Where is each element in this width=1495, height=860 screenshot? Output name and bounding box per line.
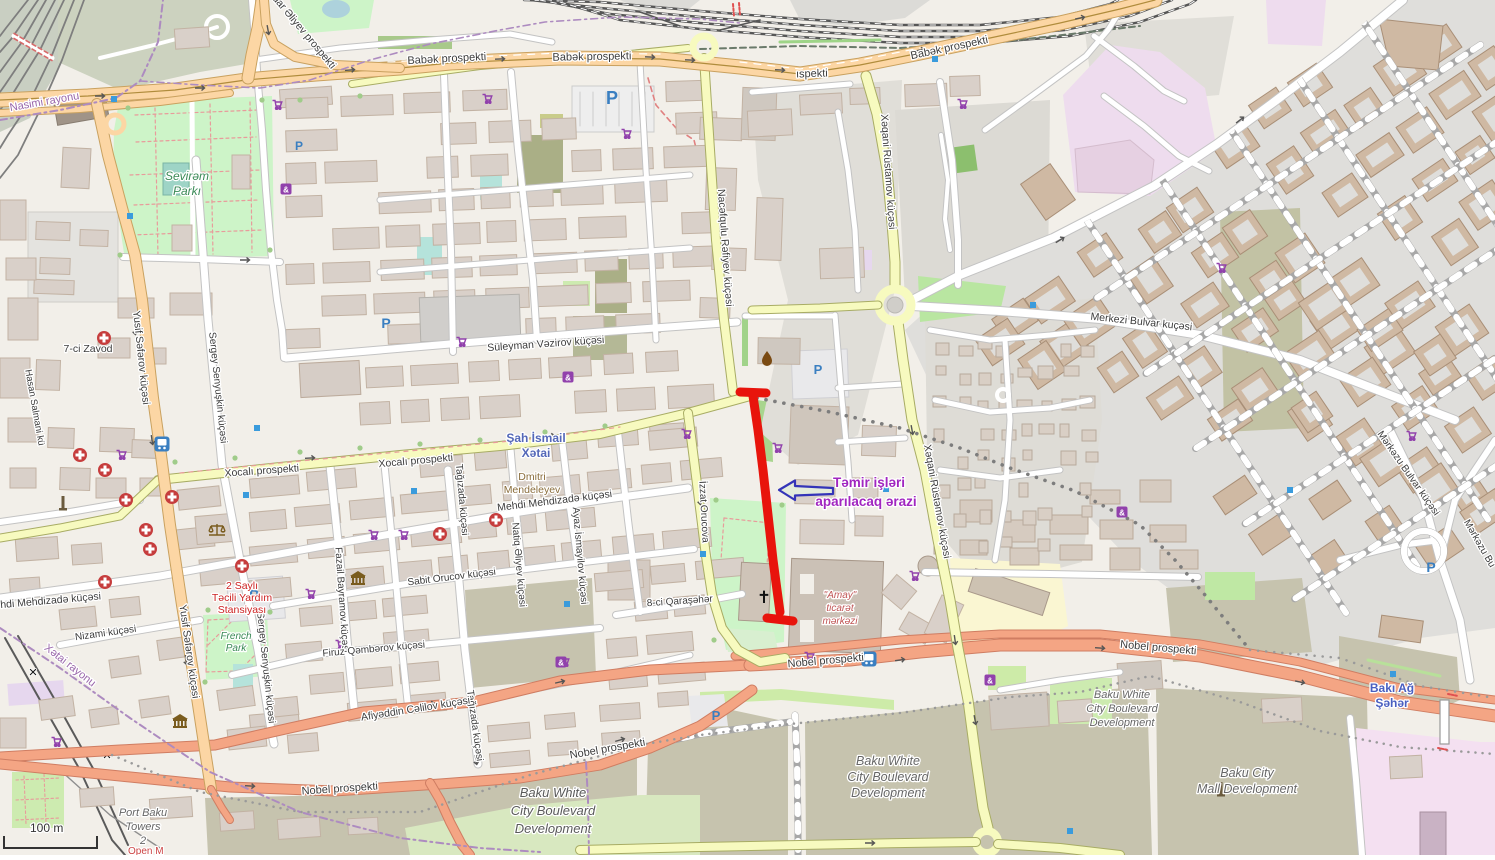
svg-text:Şah İsmail: Şah İsmail — [506, 430, 565, 445]
svg-text:&: & — [1119, 509, 1125, 518]
svg-text:City Boulevard: City Boulevard — [511, 803, 596, 818]
svg-text:mərkəzi: mərkəzi — [822, 616, 858, 627]
svg-text:French: French — [220, 631, 252, 642]
svg-text:100 m: 100 m — [30, 821, 63, 835]
svg-text:P: P — [295, 139, 303, 153]
svg-text:"Amay": "Amay" — [824, 590, 857, 601]
svg-text:Parkı: Parkı — [173, 184, 201, 198]
svg-text:✝: ✝ — [757, 588, 771, 607]
svg-text:7-ci Zavod: 7-ci Zavod — [63, 343, 112, 355]
svg-text:P: P — [814, 362, 823, 377]
svg-text:P: P — [381, 315, 390, 331]
svg-text:Baku White: Baku White — [520, 785, 586, 800]
svg-text:ticarət: ticarət — [826, 603, 854, 614]
svg-text:Development: Development — [515, 821, 593, 836]
svg-text:2 Saylı: 2 Saylı — [226, 580, 258, 592]
svg-text:Baku White: Baku White — [856, 754, 920, 768]
svg-text:Təmir işləri: Təmir işləri — [833, 475, 905, 490]
svg-text:P: P — [712, 708, 721, 723]
svg-text:aparılacaq ərazi: aparılacaq ərazi — [815, 494, 916, 509]
svg-text:×: × — [29, 664, 38, 681]
svg-text:&: & — [558, 659, 564, 668]
svg-text:Xətai: Xətai — [522, 446, 551, 460]
svg-text:Babək prospekti: Babək prospekti — [552, 50, 631, 63]
svg-text:Towers: Towers — [125, 821, 161, 833]
svg-text:Stansiyası: Stansiyası — [218, 604, 266, 616]
svg-text:Bakı Ağ: Bakı Ağ — [1370, 681, 1414, 695]
svg-text:Dmitri: Dmitri — [518, 471, 545, 483]
svg-text:Open M: Open M — [128, 846, 164, 855]
svg-text:Baku City: Baku City — [1220, 766, 1274, 780]
svg-text:Mendeleyev: Mendeleyev — [504, 484, 561, 496]
svg-text:Park: Park — [226, 643, 248, 654]
svg-text:P: P — [1426, 559, 1435, 575]
svg-text:&: & — [565, 374, 571, 383]
svg-text:Sevirəm: Sevirəm — [165, 169, 209, 183]
svg-text:ıspekti: ıspekti — [796, 67, 828, 80]
svg-text:Development: Development — [1090, 717, 1156, 729]
svg-text:City Boulevard: City Boulevard — [1086, 703, 1158, 715]
svg-text:&: & — [987, 677, 993, 686]
svg-text:P: P — [606, 88, 618, 108]
svg-text:Təcili Yardım: Təcili Yardım — [212, 592, 273, 604]
svg-text:Baku White: Baku White — [1094, 689, 1150, 701]
svg-text:Şəhər: Şəhər — [1375, 696, 1409, 710]
svg-text:Port Baku: Port Baku — [119, 807, 167, 819]
svg-text:City Boulevard: City Boulevard — [847, 770, 929, 784]
svg-text:&: & — [283, 186, 289, 195]
svg-text:Mall Development: Mall Development — [1197, 782, 1298, 796]
svg-text:Development: Development — [851, 786, 925, 800]
